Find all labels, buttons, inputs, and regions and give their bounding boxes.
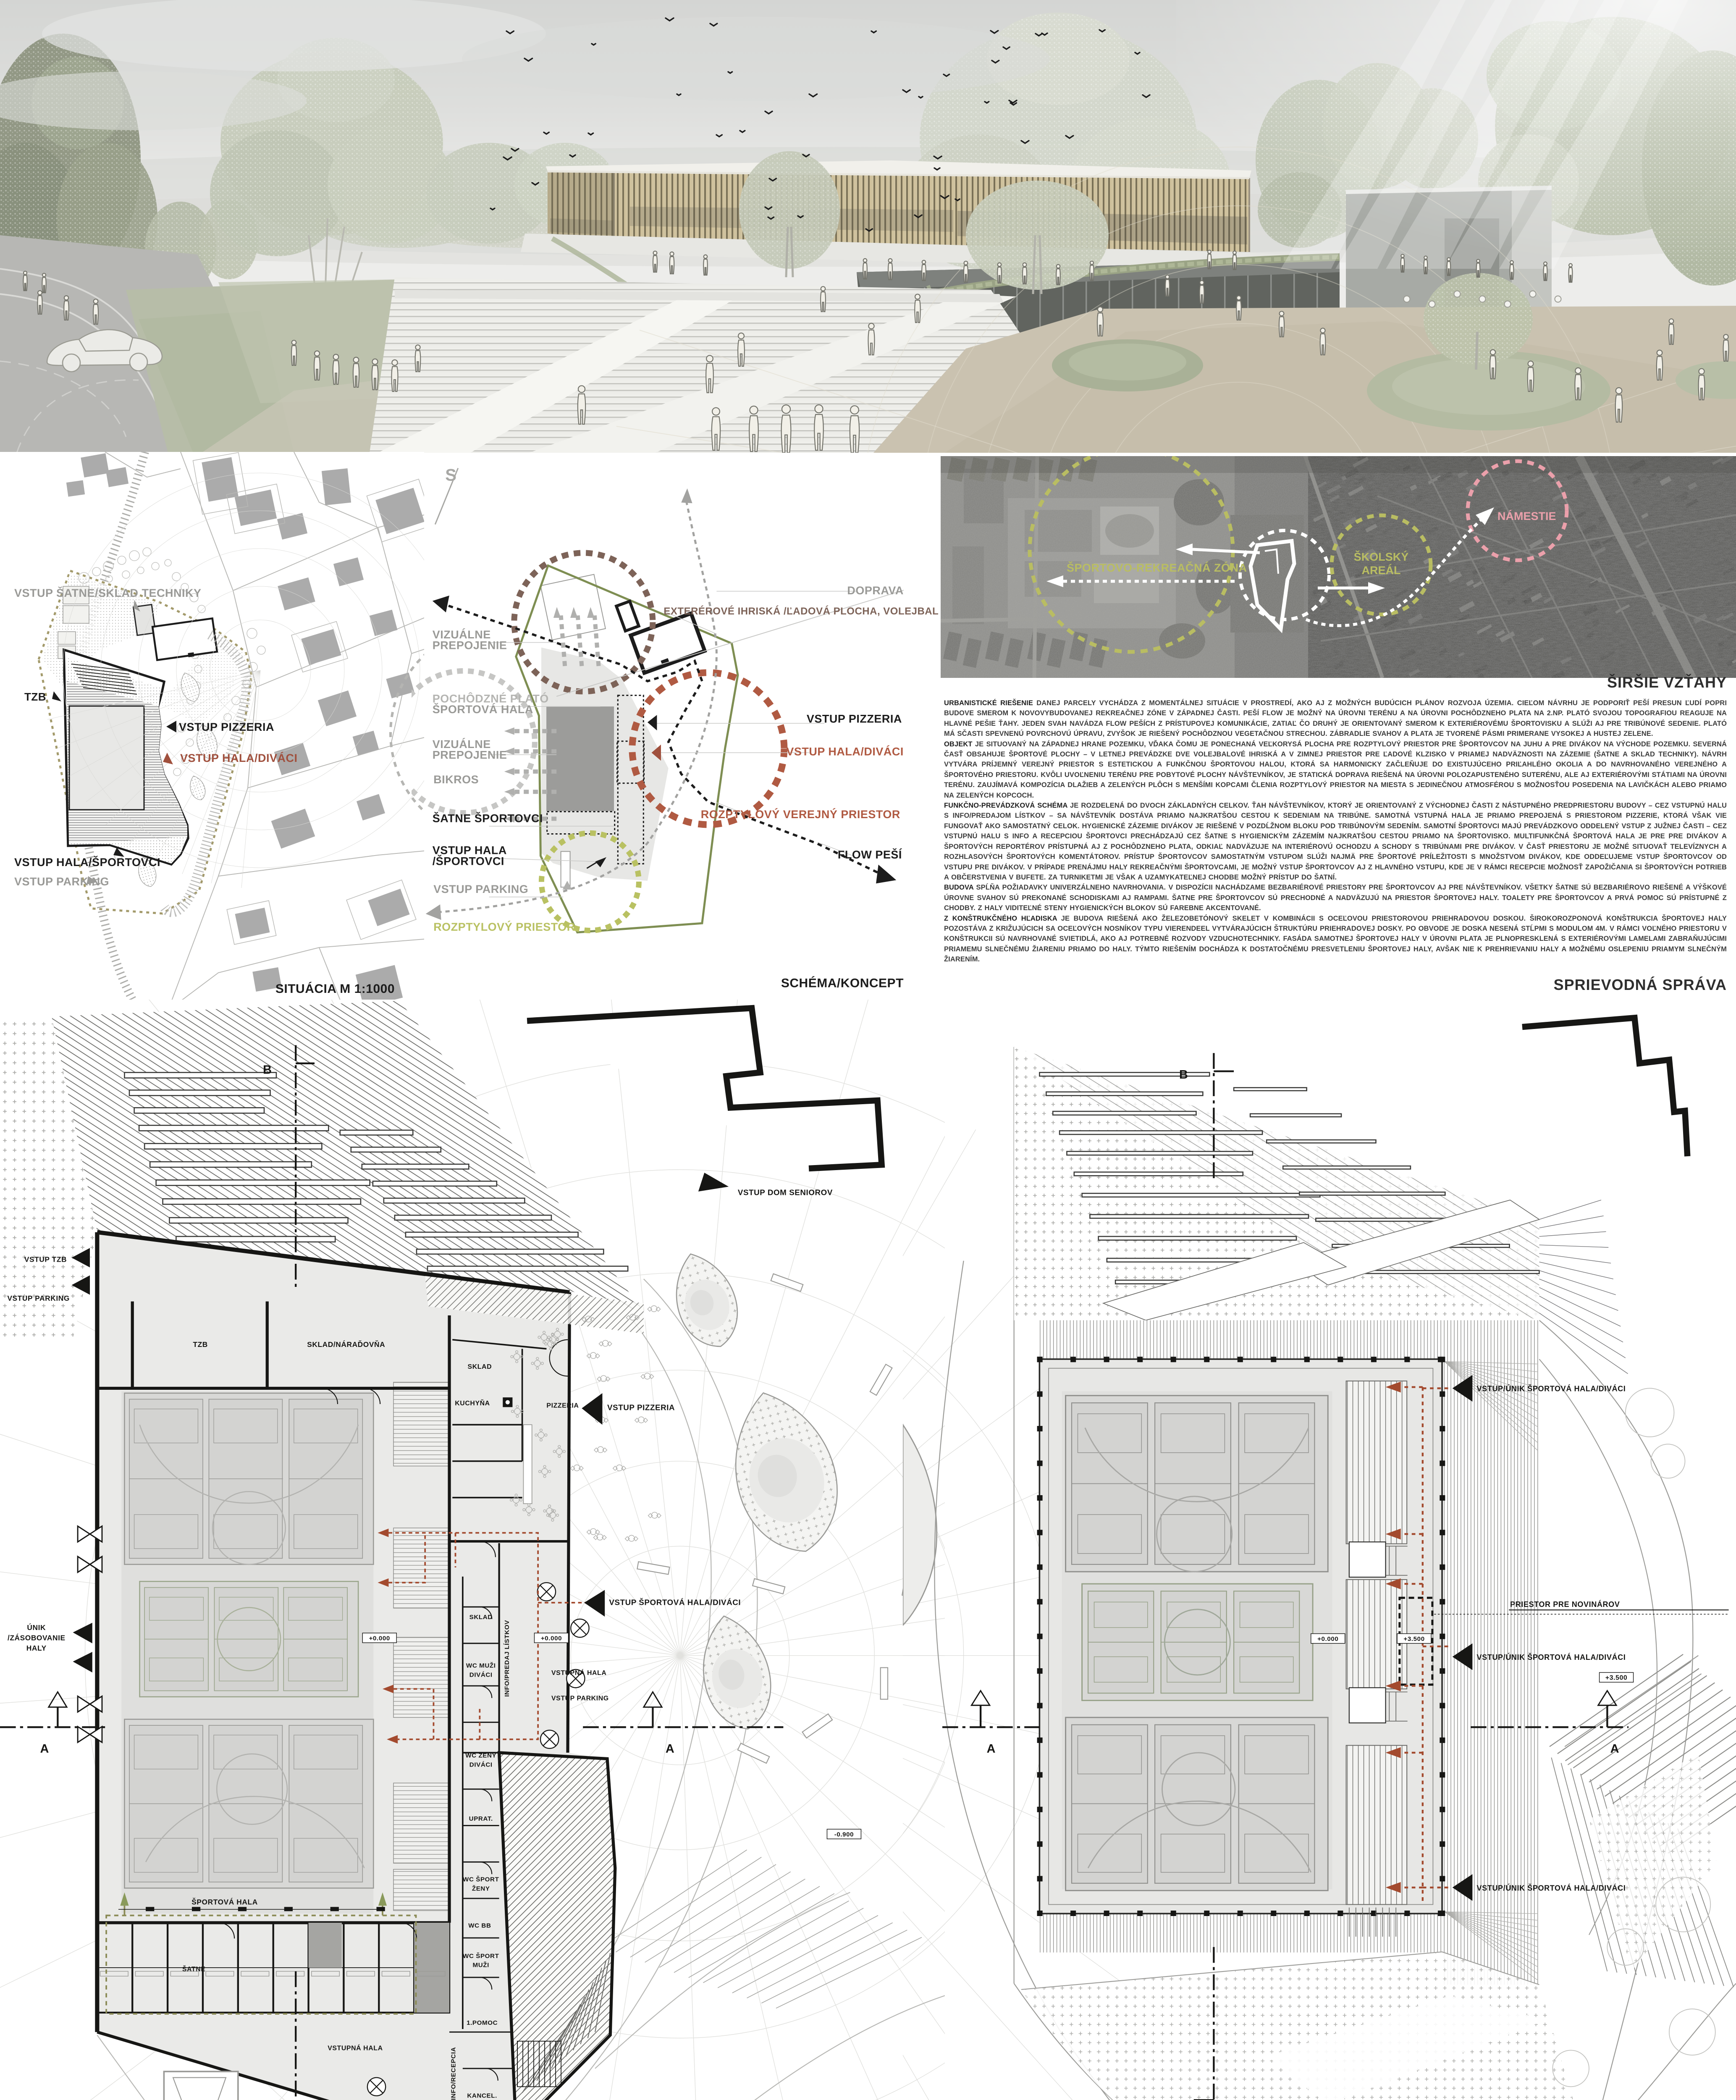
svg-text:MUŽI: MUŽI [473, 1961, 489, 1969]
svg-text:INFO/RECEPCIA: INFO/RECEPCIA [450, 2047, 457, 2100]
svg-text:VSTUP HALA/DIVÁCI: VSTUP HALA/DIVÁCI [180, 751, 298, 764]
svg-text:VSTUP PARKING: VSTUP PARKING [433, 883, 528, 895]
svg-text:SKLAD: SKLAD [468, 1363, 492, 1370]
svg-text:PREPOJENIE: PREPOJENIE [433, 639, 507, 652]
svg-text:WC ŠPORT: WC ŠPORT [463, 1952, 499, 1960]
svg-text:EXTERÉROVÉ IHRISKÁ /ĽADOVÁ PLO: EXTERÉROVÉ IHRISKÁ /ĽADOVÁ PLOCHA, VOLEJ… [663, 605, 939, 617]
svg-text:+0.000: +0.000 [1317, 1635, 1338, 1643]
svg-text:DOPRAVA: DOPRAVA [847, 584, 904, 597]
svg-text:VSTUP PARKING: VSTUP PARKING [7, 1294, 70, 1302]
svg-text:FLOW PEŠÍ: FLOW PEŠÍ [838, 848, 902, 861]
svg-text:DIVÁCI: DIVÁCI [469, 1671, 493, 1678]
svg-text:ROZPTYLOVÝ PRIESTOR: ROZPTYLOVÝ PRIESTOR [433, 920, 575, 933]
svg-text:1.POMOC: 1.POMOC [467, 2019, 498, 2026]
svg-text:KUCHYŇA: KUCHYŇA [455, 1399, 490, 1407]
svg-text:SCHÉMA/KONCEPT: SCHÉMA/KONCEPT [781, 976, 904, 990]
svg-text:BIKROS: BIKROS [433, 773, 479, 786]
svg-text:PIZZERIA: PIZZERIA [546, 1402, 579, 1410]
svg-text:NÁMESTIE: NÁMESTIE [1497, 509, 1556, 522]
svg-text:SKLAD/NÁRAĎOVŇA: SKLAD/NÁRAĎOVŇA [307, 1340, 385, 1349]
svg-text:ŠPORTOVÁ HALA: ŠPORTOVÁ HALA [433, 703, 533, 716]
svg-text:+3.500: +3.500 [1403, 1635, 1424, 1643]
svg-text:+0.000: +0.000 [369, 1635, 390, 1642]
svg-text:ŽENY: ŽENY [472, 1885, 490, 1892]
svg-text:A: A [987, 1742, 996, 1756]
svg-text:VSTUP PARKING: VSTUP PARKING [551, 1695, 609, 1702]
svg-text:VSTUP PIZZERIA: VSTUP PIZZERIA [607, 1403, 675, 1412]
svg-text:WC MUŽI: WC MUŽI [466, 1662, 496, 1669]
svg-text:B: B [1179, 1068, 1188, 1081]
svg-text:ROZPTYLOVÝ VEREJNÝ PRIESTOR: ROZPTYLOVÝ VEREJNÝ PRIESTOR [701, 808, 900, 821]
svg-text:HALY: HALY [26, 1644, 47, 1652]
svg-text:INFO/PREDAJ LÍSTKOV: INFO/PREDAJ LÍSTKOV [503, 1620, 511, 1697]
svg-text:SITUÁCIA M 1:1000: SITUÁCIA M 1:1000 [275, 982, 395, 996]
svg-text:AREÁL: AREÁL [1362, 564, 1401, 577]
svg-text:ÚNIK: ÚNIK [27, 1623, 46, 1632]
svg-text:ŠATNE ŠPORTOVCI: ŠATNE ŠPORTOVCI [433, 811, 543, 824]
svg-text:DIVÁCI: DIVÁCI [469, 1761, 493, 1768]
svg-text:-0.900: -0.900 [834, 1831, 854, 1838]
svg-text:TZB: TZB [24, 690, 46, 703]
svg-text:+3.500: +3.500 [1605, 1675, 1628, 1682]
svg-text:VSTUP TZB: VSTUP TZB [24, 1255, 67, 1264]
svg-text:A: A [40, 1742, 49, 1756]
svg-text:ŠPORTOVÁ HALA: ŠPORTOVÁ HALA [191, 1898, 258, 1906]
svg-text:ŠATNE: ŠATNE [182, 1965, 206, 1973]
svg-text:ŠKOLSKÝ: ŠKOLSKÝ [1354, 550, 1409, 563]
svg-text:VSTUP HALA/DIVÁCI: VSTUP HALA/DIVÁCI [786, 745, 904, 758]
svg-text:VSTUP ŠATNE/SKLAD TECHNIKY: VSTUP ŠATNE/SKLAD TECHNIKY [14, 586, 202, 599]
svg-text:VSTUPNÁ HALA: VSTUPNÁ HALA [328, 2044, 383, 2052]
svg-text:+0.000: +0.000 [541, 1635, 562, 1642]
svg-text:WC ŠPORT: WC ŠPORT [463, 1876, 499, 1883]
svg-text:/ŠPORTOVCI: /ŠPORTOVCI [433, 854, 504, 867]
svg-text:A: A [1610, 1742, 1619, 1756]
svg-text:VSTUP/ÚNIK ŠPORTOVÁ HALA/DIVÁC: VSTUP/ÚNIK ŠPORTOVÁ HALA/DIVÁCI [1477, 1653, 1626, 1662]
svg-text:VSTUP ŠPORTOVÁ HALA/DIVÁCI: VSTUP ŠPORTOVÁ HALA/DIVÁCI [609, 1598, 741, 1607]
svg-text:VSTUP/ÚNIK ŠPORTOVÁ HALA/DIVÁC: VSTUP/ÚNIK ŠPORTOVÁ HALA/DIVÁCI [1477, 1883, 1626, 1892]
svg-text:VSTUP/ÚNIK ŠPORTOVÁ HALA/DIVÁC: VSTUP/ÚNIK ŠPORTOVÁ HALA/DIVÁCI [1477, 1384, 1626, 1393]
svg-text:/ZÁSOBOVANIE: /ZÁSOBOVANIE [8, 1634, 66, 1642]
svg-text:PREPOJENIE: PREPOJENIE [433, 749, 507, 761]
svg-text:PRIESTOR PRE NOVINÁROV: PRIESTOR PRE NOVINÁROV [1510, 1600, 1620, 1609]
svg-text:VSTUP DOM SENIOROV: VSTUP DOM SENIOROV [738, 1188, 833, 1197]
svg-text:VSTUP PIZZERIA: VSTUP PIZZERIA [807, 713, 902, 725]
svg-text:B: B [263, 1063, 272, 1076]
svg-text:TZB: TZB [193, 1340, 207, 1349]
svg-text:VSTUP PIZZERIA: VSTUP PIZZERIA [179, 721, 274, 733]
svg-text:UPRAT.: UPRAT. [469, 1815, 493, 1822]
svg-text:WC ŽENY: WC ŽENY [465, 1752, 496, 1759]
svg-text:SKLAD: SKLAD [469, 1614, 493, 1621]
svg-text:ŠPORTOVO-REKREAČNÁ ZÓNA: ŠPORTOVO-REKREAČNÁ ZÓNA [1067, 561, 1247, 574]
svg-text:A: A [666, 1742, 674, 1756]
svg-text:KANCEL.: KANCEL. [467, 2092, 497, 2099]
svg-text:VSTUPNÁ HALA: VSTUPNÁ HALA [551, 1669, 606, 1677]
svg-text:WC BB: WC BB [468, 1922, 491, 1929]
svg-text:VSTUP HALA/ŠPORTOVCI: VSTUP HALA/ŠPORTOVCI [14, 856, 160, 869]
